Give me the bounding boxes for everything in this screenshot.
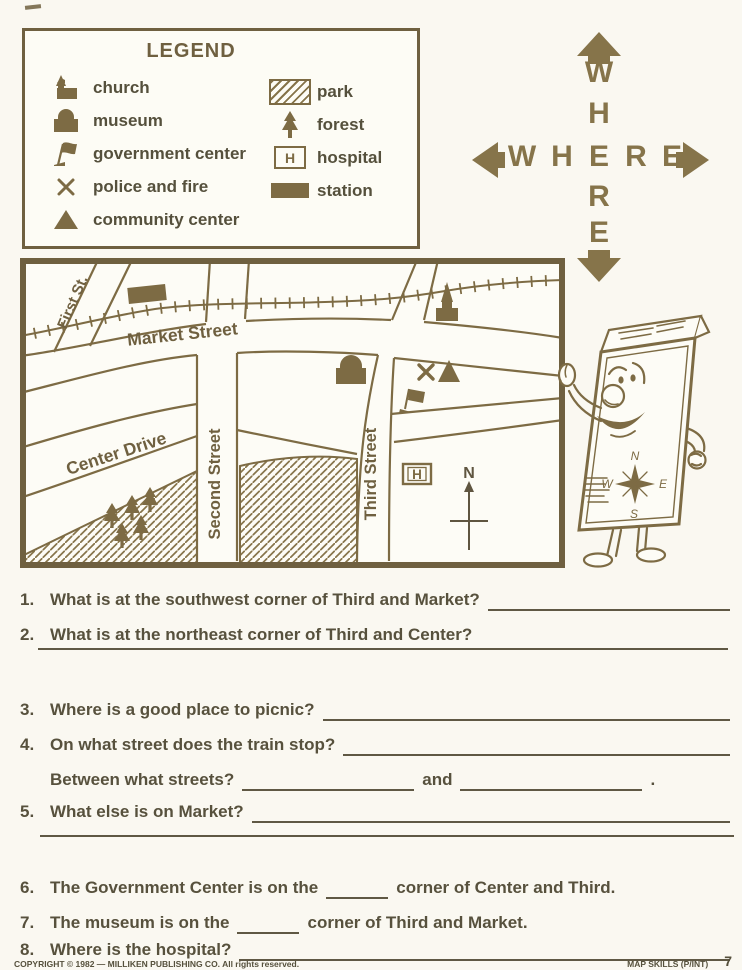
legend-item-community-center: community center [39,203,246,236]
legend-label: forest [317,115,364,135]
character-map-body [579,316,709,530]
rose-e: E [659,477,668,491]
legend-item-museum: museum [39,104,246,137]
legend-title: LEGEND [25,40,357,63]
compass-north-label: N [463,465,475,482]
answer-blank [488,590,730,611]
question-text: Where is a good place to picnic? [50,698,315,721]
hospital-symbol: H [274,146,306,169]
answer-blank [40,835,734,837]
legend-item-police-and-fire: police and fire [39,170,246,203]
museum-icon [39,109,93,133]
forest-tree-icon [263,111,317,139]
where-graphic: W H E R E W H R E [458,18,740,283]
police-fire-x-icon [39,177,93,197]
where-horizontal-letter: W [508,140,537,173]
copyright-text: COPYRIGHT © 1982 — MILLIKEN PUBLISHING C… [14,959,627,969]
park-hatch-icon [263,79,317,105]
where-vertical-letter: R [588,180,610,213]
map-label-second-street: Second Street [206,428,224,539]
question-text: What else is on Market? [50,800,244,823]
where-vertical-letter: H [588,97,610,130]
legend-item-forest: forest [263,108,382,141]
question-text: corner of Third and Market. [307,911,527,934]
hospital-symbol: H [403,464,431,484]
question-text: corner of Center and Third. [396,876,615,899]
question-number: 3. [20,698,50,721]
question-number: 2. [20,623,50,646]
question-text: The museum is on the [50,911,229,934]
question-text: The Government Center is on the [50,876,318,899]
down-arrow-icon [577,250,621,282]
answer-blank [343,735,730,756]
question-text: Between what streets? [50,768,234,791]
legend-label: government center [93,144,246,164]
legend-item-station: station [263,174,382,207]
legend-label: police and fire [93,177,208,197]
question-3: 3. Where is a good place to picnic? [20,698,730,721]
question-text: and [422,768,452,791]
legend-right-column: park forest H hospital [263,75,382,207]
church-icon [39,75,93,101]
rose-s: S [630,507,638,521]
legend-item-hospital: H hospital [263,141,382,174]
question-number: 7. [20,911,50,934]
station-block-icon [263,183,317,198]
legend-item-park: park [263,75,382,108]
question-number: 1. [20,588,50,611]
worksheet-page: LEGEND church museum [0,0,742,970]
character-legs [584,528,665,567]
answer-blank [460,770,642,791]
question-6: 6. The Government Center is on the corne… [20,876,730,899]
where-horizontal-letter: R [625,140,647,173]
legend-item-government-center: government center [39,137,246,170]
question-1: 1. What is at the southwest corner of Th… [20,588,730,611]
government-flag-icon [39,141,93,167]
question-number: 5. [20,800,50,823]
where-vertical-letter: E [589,216,609,249]
where-horizontal-letter: E [662,140,682,173]
city-map: H N First St. Market Street Second Stree… [20,258,565,568]
legend-left-column: church museum government center [39,71,246,236]
legend-box: LEGEND church museum [22,28,420,249]
hospital-box-icon: H [263,146,317,169]
hospital-symbol-letter: H [412,467,422,482]
question-4: 4. On what street does the train stop? [20,733,730,756]
where-horizontal-letter: H [551,140,573,173]
map-character: N E S W [553,288,742,580]
question-number: 6. [20,876,50,899]
question-5: 5. What else is on Market? [20,800,730,823]
community-center-triangle-icon [39,210,93,230]
answer-blank [326,878,388,899]
rose-n: N [631,449,640,463]
answer-blank [323,700,731,721]
page-footer: COPYRIGHT © 1982 — MILLIKEN PUBLISHING C… [14,953,736,969]
question-number: 4. [20,733,50,756]
series-title: MAP SKILLS (P/INT) [627,959,708,969]
answer-blank [242,770,414,791]
legend-label: museum [93,111,163,131]
answer-blank [252,802,730,823]
legend-label: park [317,82,353,102]
answer-blank [38,648,728,650]
legend-label: hospital [317,148,382,168]
question-2: 2. What is at the northeast corner of Th… [20,623,730,646]
scan-artifact [25,4,41,10]
question-text: What is at the southwest corner of Third… [50,588,480,611]
where-shared-letter: E [589,140,609,173]
where-vertical-letter: W [585,56,614,89]
legend-label: church [93,78,150,98]
park-area-east [240,457,357,563]
question-4b: Between what streets? and . [20,768,730,791]
map-label-third-street: Third Street [362,427,380,520]
question-text: . [650,768,655,791]
legend-label: community center [93,210,239,230]
question-7: 7. The museum is on the corner of Third … [20,911,730,934]
left-arrow-icon [472,142,505,178]
legend-item-church: church [39,71,246,104]
question-text: What is at the northeast corner of Third… [50,623,472,646]
answer-blank [237,913,299,934]
page-number: 7 [724,953,732,969]
legend-label: station [317,181,373,201]
question-text: On what street does the train stop? [50,733,335,756]
